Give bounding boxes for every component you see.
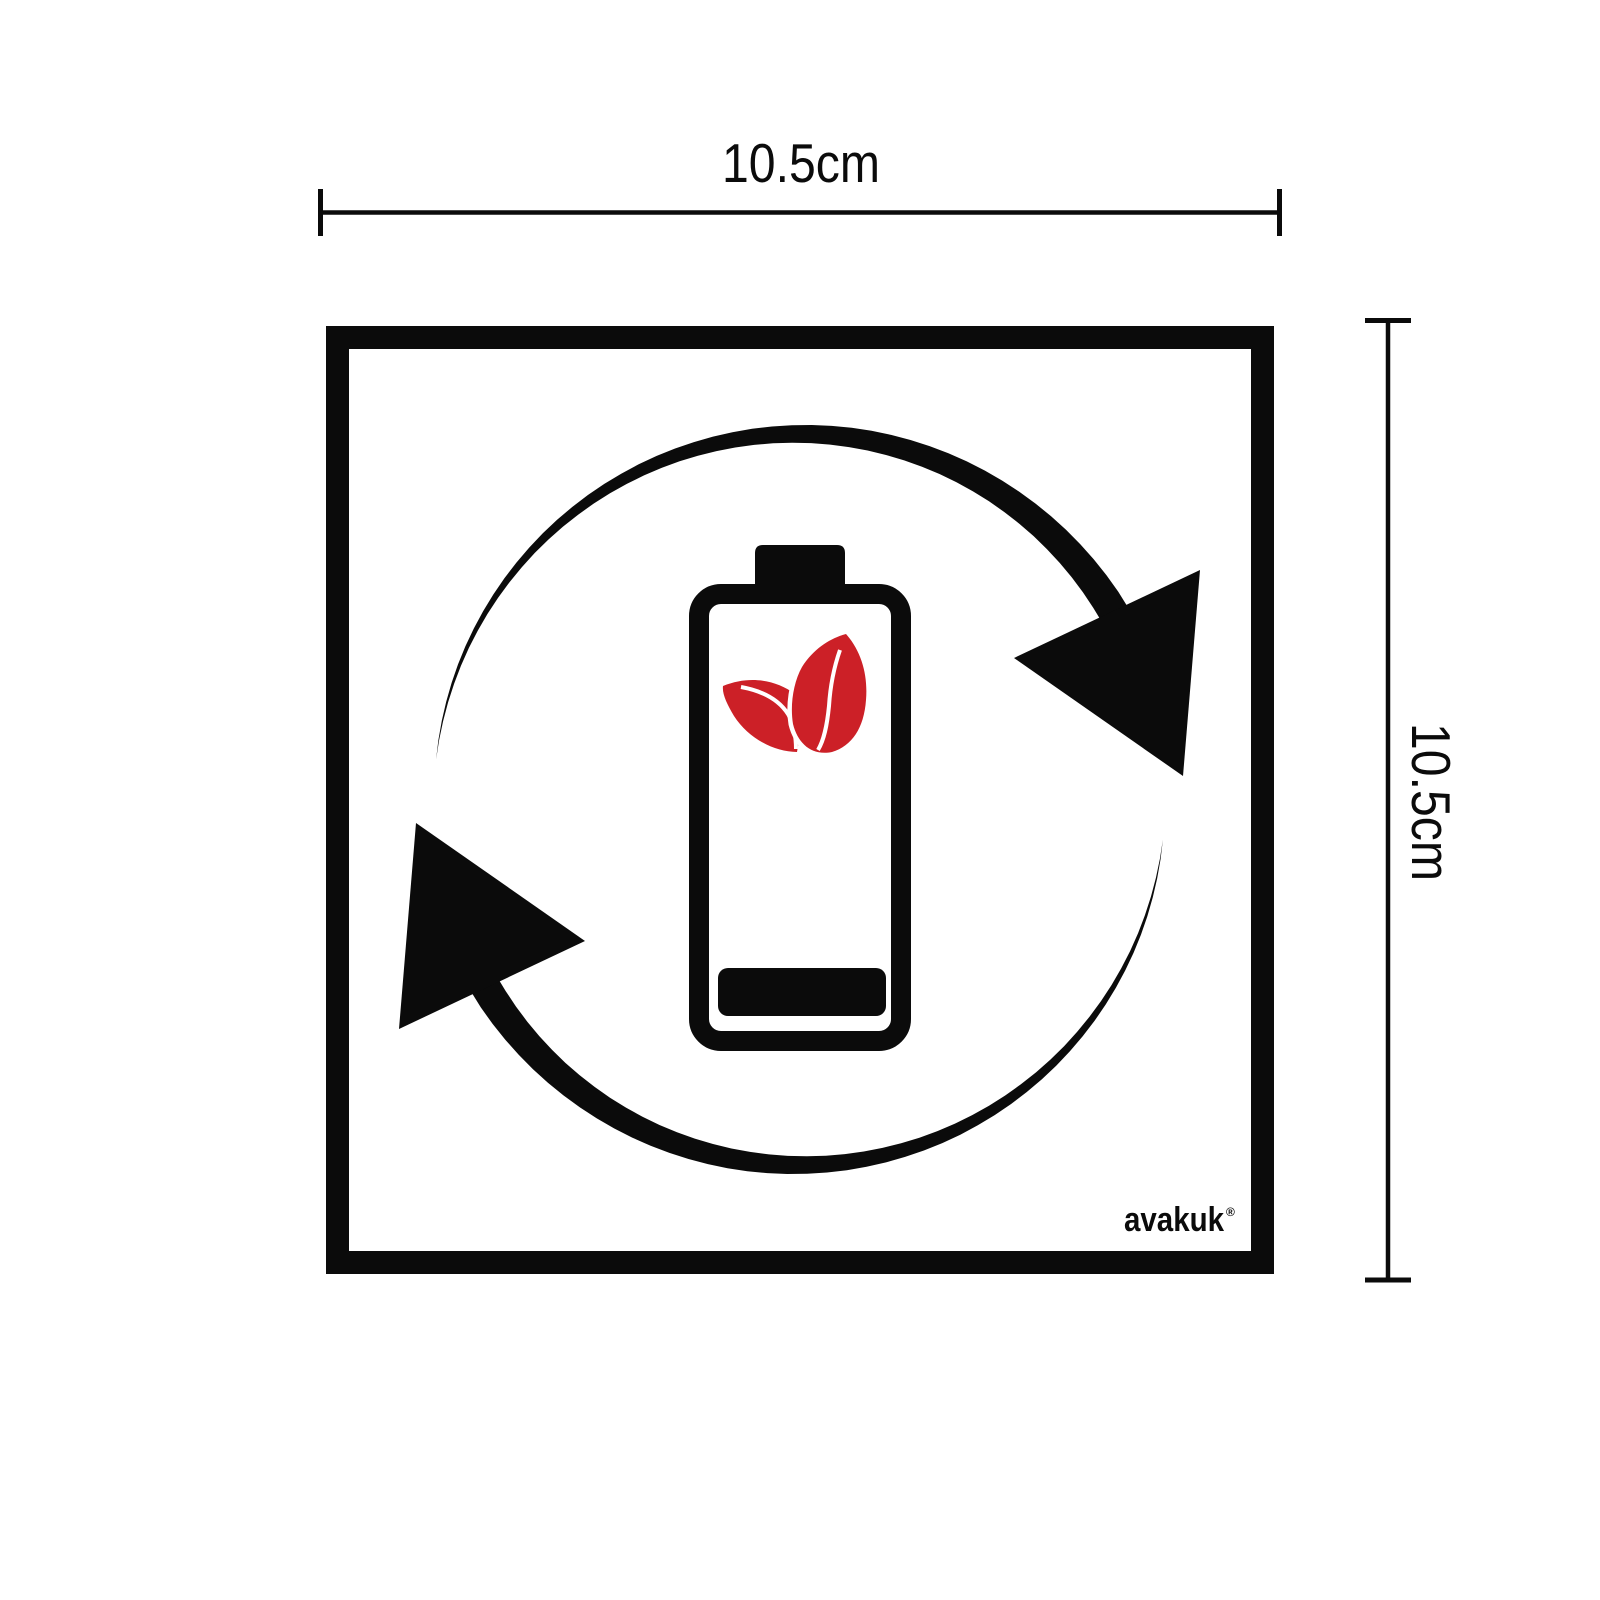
svg-text:10.5cm: 10.5cm: [722, 133, 880, 194]
svg-text:10.5cm: 10.5cm: [1400, 723, 1461, 881]
svg-text:®: ®: [1226, 1205, 1235, 1219]
svg-text:avakuk: avakuk: [1124, 1201, 1224, 1239]
